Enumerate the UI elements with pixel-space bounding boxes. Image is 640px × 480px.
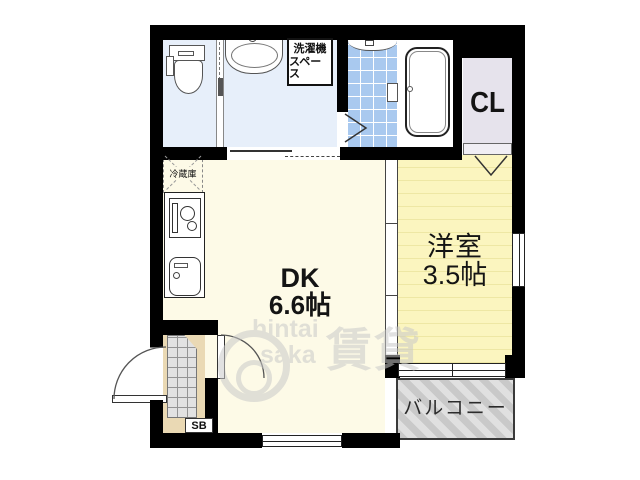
bathroom-door-handle-box xyxy=(387,83,398,102)
refrigerator-label: 冷蔵庫 xyxy=(169,167,196,180)
wall-bottom-right xyxy=(342,433,400,448)
sliding-partition xyxy=(385,158,398,355)
dk-label: DK xyxy=(281,264,320,292)
shoe-box: SB xyxy=(185,418,213,433)
wall-washroom-bathroom xyxy=(337,25,348,112)
bathroom-faucet-icon xyxy=(365,40,374,46)
dk-label-block: DK 6.6帖 xyxy=(230,264,370,320)
western-room-label: 洋室 xyxy=(427,233,483,261)
western-room-size-label: 3.5帖 xyxy=(423,261,488,289)
dk-window xyxy=(262,435,342,447)
wall-entrance-partition xyxy=(205,378,218,448)
sliding-door-panel-line xyxy=(230,150,292,152)
stove-burner-large xyxy=(180,206,195,221)
western-label-block: 洋室 3.5帖 xyxy=(398,233,512,290)
toilet-control-panel xyxy=(166,56,174,76)
wall-entrance-top xyxy=(150,320,218,335)
toilet-sliding-door-line xyxy=(219,42,220,80)
vanity-basin xyxy=(231,43,278,68)
entrance-door-opening xyxy=(150,347,163,402)
partition-panel-divider xyxy=(385,223,398,224)
sink-soap-tray xyxy=(174,263,188,268)
laundry-label-line1: 洗濯機 xyxy=(294,43,327,56)
dk-size-label: 6.6帖 xyxy=(269,292,331,319)
stove-burner-small xyxy=(187,221,197,231)
bathtub-inner xyxy=(409,51,446,133)
partition-panel-divider xyxy=(385,295,398,296)
bathroom-door-opening xyxy=(338,112,348,147)
entrance-step-tiles xyxy=(167,335,197,418)
laundry-space-box: 洗濯機 スペース xyxy=(287,38,333,86)
washroom-sliding-door xyxy=(227,147,340,160)
wall-above-closet xyxy=(462,25,525,58)
wall-left-upper xyxy=(150,25,163,347)
wall-stub-balcony-right xyxy=(505,355,521,378)
stove-grill xyxy=(172,203,178,233)
balcony-label: バルコニー xyxy=(403,399,508,419)
dk-door-leaf xyxy=(217,335,225,379)
toilet-door-panel xyxy=(218,78,223,96)
laundry-label-line2: スペース xyxy=(289,56,331,81)
wall-bathroom-right xyxy=(453,25,462,160)
western-balcony-window xyxy=(398,363,506,377)
wall-under-bathroom xyxy=(340,147,462,160)
closet-threshold xyxy=(463,143,512,155)
sliding-door-track-line xyxy=(285,156,340,157)
wall-under-toilet xyxy=(150,147,227,160)
balcony-area: バルコニー xyxy=(396,378,515,440)
western-side-window xyxy=(512,233,525,287)
shoe-box-label: SB xyxy=(191,420,206,432)
toilet-tank-button xyxy=(178,51,194,56)
sink-faucet-icon xyxy=(173,272,180,279)
closet-label: CL xyxy=(465,88,509,118)
bathtub-drain-icon xyxy=(407,86,413,92)
floorplan: バルコニー 洗濯機 スペース 冷蔵庫 SB xyxy=(0,0,640,480)
